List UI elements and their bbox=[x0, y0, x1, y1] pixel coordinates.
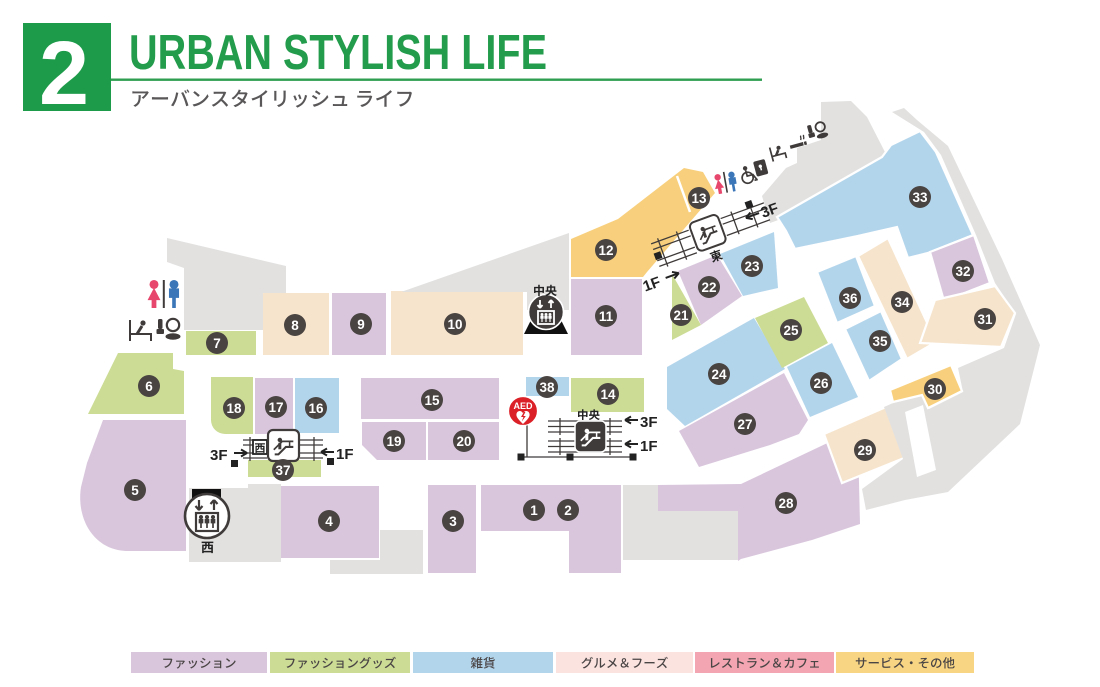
svg-text:16: 16 bbox=[308, 401, 324, 416]
svg-text:15: 15 bbox=[424, 393, 440, 408]
svg-text:30: 30 bbox=[927, 382, 942, 397]
svg-text:23: 23 bbox=[744, 259, 760, 274]
svg-text:20: 20 bbox=[456, 434, 471, 449]
svg-text:14: 14 bbox=[600, 387, 616, 402]
svg-text:17: 17 bbox=[268, 400, 283, 415]
svg-text:1F: 1F bbox=[641, 274, 663, 296]
svg-text:36: 36 bbox=[842, 291, 858, 306]
svg-text:8: 8 bbox=[291, 318, 299, 333]
svg-text:28: 28 bbox=[778, 496, 794, 511]
svg-text:3F: 3F bbox=[640, 414, 658, 431]
svg-text:37: 37 bbox=[275, 463, 290, 478]
svg-text:9: 9 bbox=[357, 317, 365, 332]
svg-text:25: 25 bbox=[783, 323, 799, 338]
svg-text:24: 24 bbox=[711, 367, 727, 382]
svg-text:6: 6 bbox=[145, 379, 153, 394]
svg-text:3: 3 bbox=[449, 514, 457, 529]
svg-text:1F: 1F bbox=[336, 446, 354, 463]
svg-text:31: 31 bbox=[977, 312, 993, 327]
svg-text:10: 10 bbox=[447, 317, 462, 332]
svg-text:AED: AED bbox=[513, 401, 533, 411]
svg-text:2: 2 bbox=[564, 503, 572, 518]
svg-text:12: 12 bbox=[598, 243, 613, 258]
svg-text:URBAN STYLISH LIFE: URBAN STYLISH LIFE bbox=[129, 25, 547, 80]
svg-text:11: 11 bbox=[599, 309, 614, 324]
svg-text:21: 21 bbox=[673, 308, 689, 323]
svg-text:29: 29 bbox=[857, 443, 872, 458]
svg-text:32: 32 bbox=[955, 264, 970, 279]
svg-text:19: 19 bbox=[386, 434, 401, 449]
svg-text:38: 38 bbox=[539, 380, 555, 395]
svg-text:1F: 1F bbox=[640, 438, 658, 455]
svg-text:22: 22 bbox=[701, 280, 716, 295]
svg-text:1: 1 bbox=[530, 503, 538, 518]
svg-text:7: 7 bbox=[213, 336, 221, 351]
svg-text:3F: 3F bbox=[210, 447, 228, 464]
svg-text:18: 18 bbox=[226, 401, 242, 416]
svg-text:35: 35 bbox=[872, 334, 888, 349]
svg-text:4: 4 bbox=[325, 514, 333, 529]
svg-text:33: 33 bbox=[912, 190, 928, 205]
svg-text:5: 5 bbox=[131, 483, 139, 498]
svg-text:13: 13 bbox=[691, 191, 707, 206]
svg-text:27: 27 bbox=[737, 417, 752, 432]
svg-text:2: 2 bbox=[39, 24, 89, 124]
svg-text:34: 34 bbox=[894, 295, 910, 310]
svg-text:26: 26 bbox=[813, 376, 829, 391]
